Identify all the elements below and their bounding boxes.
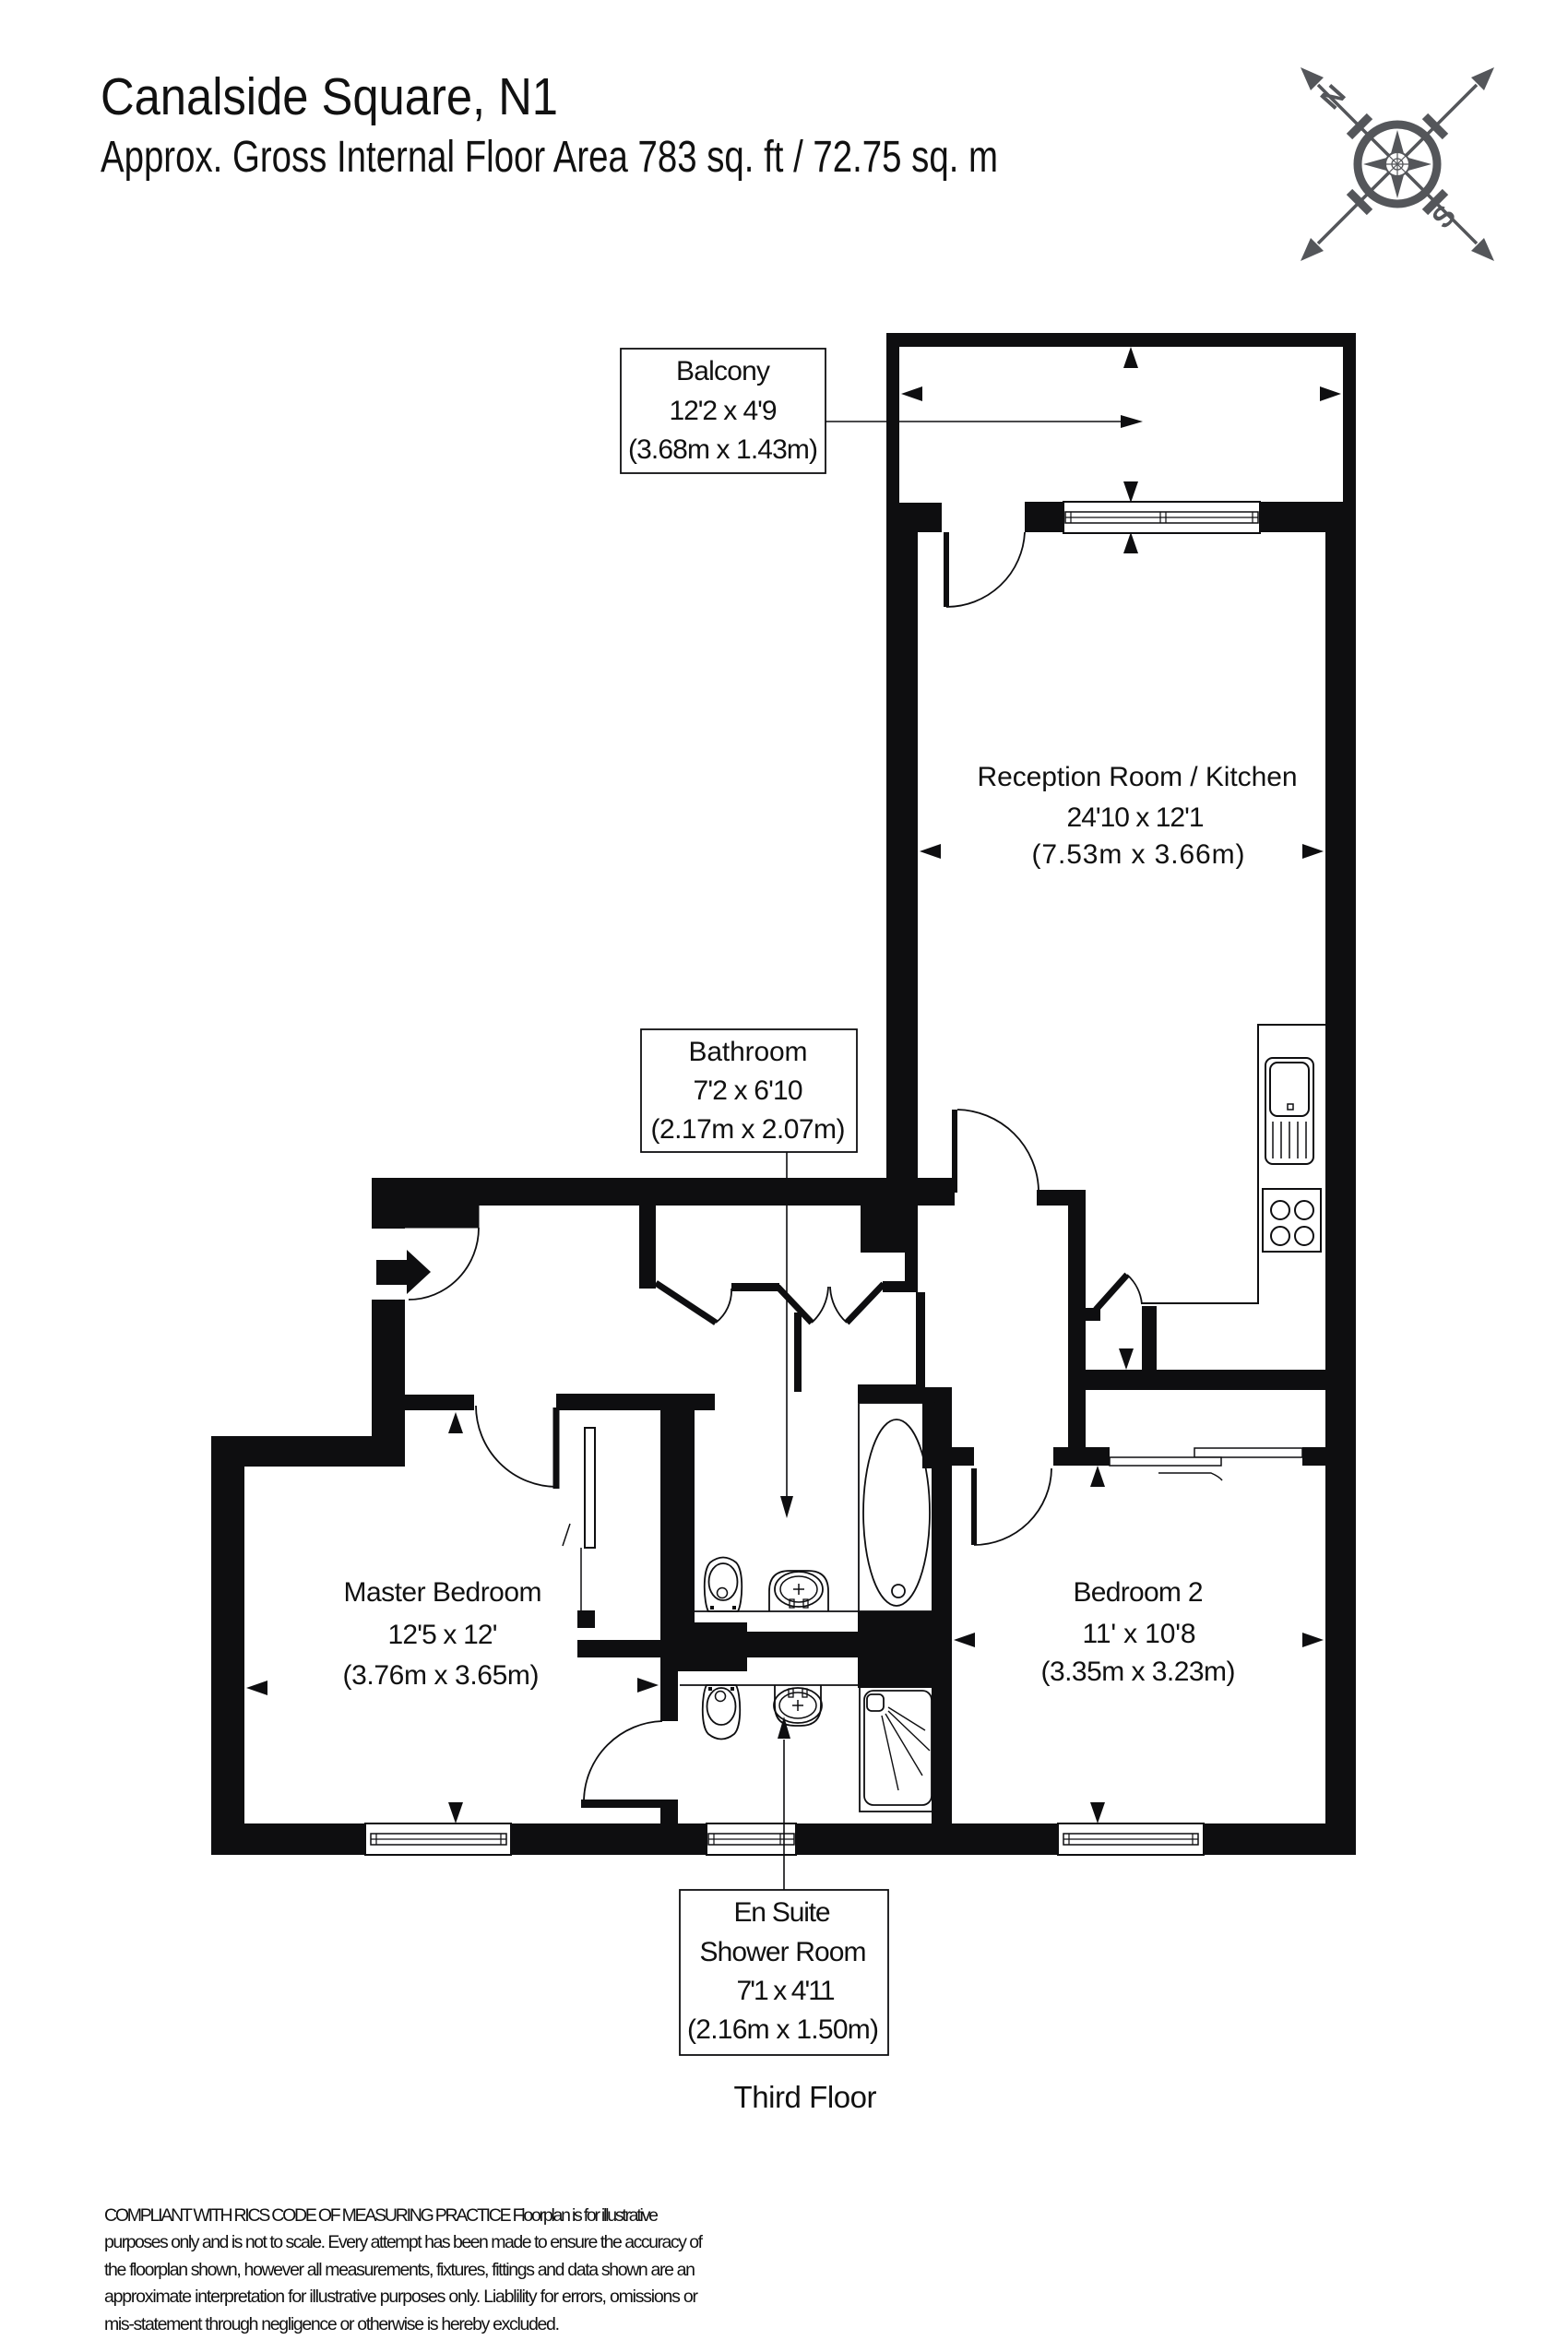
svg-text:mis-statement through negligen: mis-statement through negligence or othe… <box>104 2314 560 2334</box>
svg-text:Canalside Square, N1: Canalside Square, N1 <box>101 67 558 126</box>
svg-text:(3.68m x 1.43m): (3.68m x 1.43m) <box>628 434 818 465</box>
svg-text:(3.76m x 3.65m): (3.76m x 3.65m) <box>343 1660 540 1691</box>
svg-text:Bathroom: Bathroom <box>689 1037 808 1067</box>
svg-text:Third Floor: Third Floor <box>734 2080 877 2114</box>
svg-text:(2.16m x 1.50m): (2.16m x 1.50m) <box>687 2014 879 2045</box>
svg-text:Reception Room / Kitchen: Reception Room / Kitchen <box>978 762 1298 792</box>
svg-text:En Suite: En Suite <box>734 1897 831 1928</box>
svg-text:7'2 x 6'10: 7'2 x 6'10 <box>694 1075 803 1106</box>
svg-text:approximate interpretation for: approximate interpretation for illustrat… <box>104 2287 699 2307</box>
svg-text:7'1 x 4'11: 7'1 x 4'11 <box>737 1976 836 2006</box>
svg-text:24'10 x 12'1: 24'10 x 12'1 <box>1067 802 1205 833</box>
svg-text:purposes only and is not to sc: purposes only and is not to scale. Every… <box>104 2232 704 2252</box>
svg-text:11' x 10'8: 11' x 10'8 <box>1083 1619 1196 1649</box>
svg-text:12'5 x 12': 12'5 x 12' <box>388 1620 498 1650</box>
svg-text:(3.35m x 3.23m): (3.35m x 3.23m) <box>1041 1657 1236 1687</box>
svg-text:(2.17m x 2.07m): (2.17m x 2.07m) <box>651 1114 846 1145</box>
svg-text:12'2 x 4'9: 12'2 x 4'9 <box>670 396 778 426</box>
svg-text:Shower Room: Shower Room <box>700 1937 867 1967</box>
svg-text:Approx. Gross Internal Floor A: Approx. Gross Internal Floor Area 783 sq… <box>101 133 998 182</box>
svg-text:Master Bedroom: Master Bedroom <box>344 1577 542 1608</box>
svg-text:Balcony: Balcony <box>676 356 770 386</box>
svg-text:COMPLIANT WITH RICS CODE OF ME: COMPLIANT WITH RICS CODE OF MEASURING PR… <box>104 2205 659 2226</box>
svg-text:(7.53m x 3.66m): (7.53m x 3.66m) <box>1032 839 1245 870</box>
svg-text:Bedroom 2: Bedroom 2 <box>1074 1577 1204 1608</box>
svg-text:the floorplan shown, however a: the floorplan shown, however all measure… <box>104 2260 695 2280</box>
